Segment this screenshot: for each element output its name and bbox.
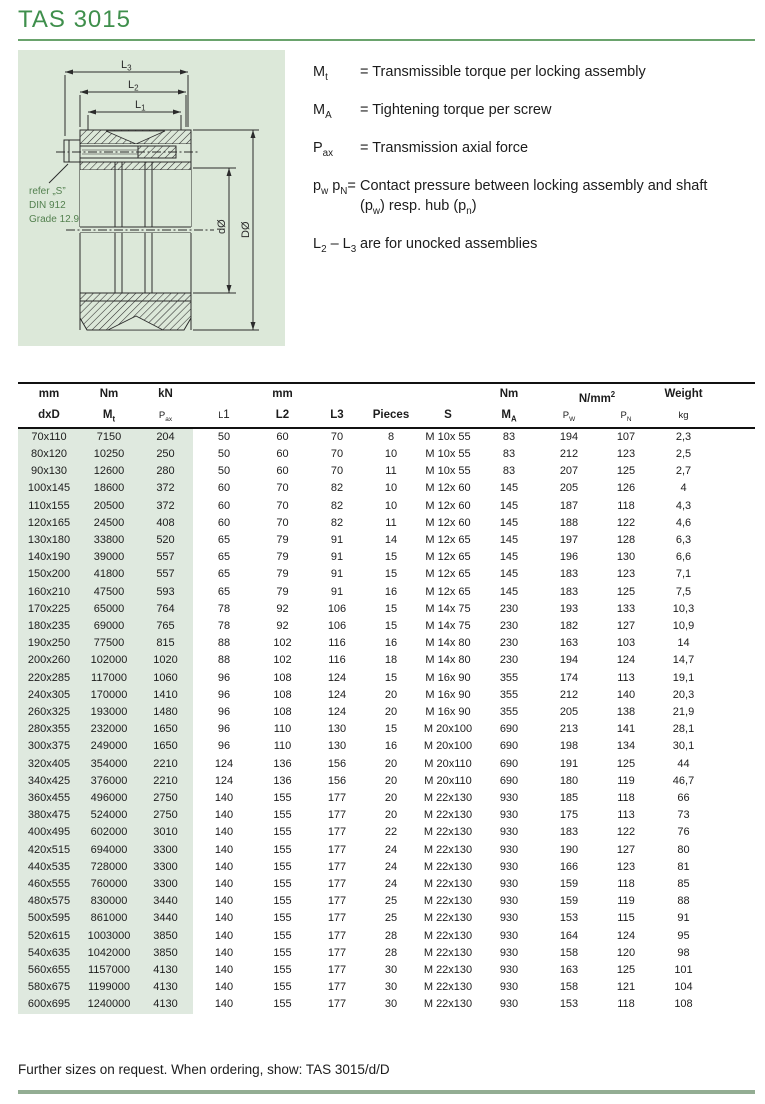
cell-l1: 96 — [193, 670, 255, 687]
cell-s: M 22x130 — [418, 996, 478, 1013]
legend-symbol: Mt — [313, 62, 360, 88]
cell-weight: 44 — [654, 756, 755, 773]
legend-symbol: Pax — [313, 138, 360, 164]
cell-pn: 123 — [598, 446, 654, 463]
cell-pn: 125 — [598, 756, 654, 773]
table-unit-row: mmNmkNmmNmN/mm2Weight — [18, 384, 755, 408]
cell-dxd: 600x695 — [18, 996, 80, 1013]
cell-pn: 141 — [598, 721, 654, 738]
cell-l3: 156 — [310, 773, 364, 790]
cell-l2: 108 — [255, 670, 310, 687]
cell-s: M 22x130 — [418, 842, 478, 859]
cell-l3: 177 — [310, 910, 364, 927]
legend-description: = Transmissible torque per locking assem… — [360, 62, 753, 88]
cell-pw: 213 — [540, 721, 598, 738]
cell-s: M 14x 80 — [418, 652, 478, 669]
cell-pieces: 25 — [364, 910, 418, 927]
cell-pn: 118 — [598, 876, 654, 893]
cell-weight: 95 — [654, 928, 755, 945]
cell-pax: 1410 — [138, 687, 193, 704]
cell-weight: 14,7 — [654, 652, 755, 669]
cell-pn: 138 — [598, 704, 654, 721]
cell-pn: 127 — [598, 618, 654, 635]
cell-l1: 50 — [193, 429, 255, 446]
cell-dxd: 160x210 — [18, 584, 80, 601]
cell-l1: 65 — [193, 584, 255, 601]
table-row: 260x32519300014809610812420M 16x 9035520… — [18, 704, 755, 721]
cell-dxd: 360x455 — [18, 790, 80, 807]
cell-pax: 520 — [138, 532, 193, 549]
cell-ma: 145 — [478, 549, 540, 566]
cell-ma: 930 — [478, 859, 540, 876]
cell-ma: 145 — [478, 515, 540, 532]
cell-pieces: 24 — [364, 842, 418, 859]
cell-ma: 230 — [478, 618, 540, 635]
cell-pw: 212 — [540, 446, 598, 463]
cell-dxd: 220x285 — [18, 670, 80, 687]
cell-mt: 24500 — [80, 515, 138, 532]
column-header-pn: PN — [598, 408, 654, 427]
cell-mt: 18600 — [80, 480, 138, 497]
cell-s: M 22x130 — [418, 807, 478, 824]
cell-pieces: 20 — [364, 807, 418, 824]
cell-l3: 70 — [310, 446, 364, 463]
cell-dxd: 170x225 — [18, 601, 80, 618]
cell-pax: 2210 — [138, 773, 193, 790]
dimension-l1-label: L1 — [135, 99, 146, 113]
cell-pieces: 20 — [364, 704, 418, 721]
cell-pw: 153 — [540, 910, 598, 927]
cell-pieces: 11 — [364, 463, 418, 480]
cell-mt: 69000 — [80, 618, 138, 635]
unit-cell — [193, 384, 255, 408]
cell-l2: 155 — [255, 979, 310, 996]
cell-pn: 125 — [598, 584, 654, 601]
cell-pax: 372 — [138, 480, 193, 497]
cell-pieces: 15 — [364, 670, 418, 687]
cell-pn: 125 — [598, 463, 654, 480]
table-header-row: dxDMtPaxL1L2L3PiecesSMAPWPNkg — [18, 408, 755, 427]
cell-weight: 46,7 — [654, 773, 755, 790]
cell-s: M 12x 60 — [418, 515, 478, 532]
cell-l1: 88 — [193, 635, 255, 652]
cell-pn: 140 — [598, 687, 654, 704]
cell-mt: 10250 — [80, 446, 138, 463]
cell-dxd: 190x250 — [18, 635, 80, 652]
cell-dxd: 110x155 — [18, 498, 80, 515]
cell-mt: 33800 — [80, 532, 138, 549]
cell-dxd: 520x615 — [18, 928, 80, 945]
column-header-pw: PW — [540, 408, 598, 427]
cell-s: M 10x 55 — [418, 463, 478, 480]
column-header-pax: Pax — [138, 408, 193, 427]
cell-ma: 930 — [478, 979, 540, 996]
cell-pax: 1650 — [138, 721, 193, 738]
cell-l2: 155 — [255, 824, 310, 841]
cell-l3: 156 — [310, 756, 364, 773]
assembly-lower-half — [80, 233, 191, 330]
cell-pax: 4130 — [138, 962, 193, 979]
cell-pax: 557 — [138, 549, 193, 566]
dimension-d-big-label: DØ — [240, 221, 252, 238]
cell-pw: 174 — [540, 670, 598, 687]
cell-s: M 10x 55 — [418, 446, 478, 463]
cell-pn: 122 — [598, 515, 654, 532]
cell-l3: 116 — [310, 652, 364, 669]
cell-pieces: 30 — [364, 996, 418, 1013]
cell-weight: 98 — [654, 945, 755, 962]
cell-weight: 21,9 — [654, 704, 755, 721]
table-row: 360x455496000275014015517720M 22x1309301… — [18, 790, 755, 807]
cell-dxd: 180x235 — [18, 618, 80, 635]
cell-l2: 110 — [255, 738, 310, 755]
legend-description: = Tightening torque per screw — [360, 100, 753, 126]
cell-l2: 110 — [255, 721, 310, 738]
cell-ma: 930 — [478, 928, 540, 945]
cell-l3: 82 — [310, 515, 364, 532]
cell-l1: 50 — [193, 463, 255, 480]
cell-pn: 115 — [598, 910, 654, 927]
cell-mt: 760000 — [80, 876, 138, 893]
cell-l2: 155 — [255, 945, 310, 962]
legend-description: are for unocked assemblies — [360, 234, 753, 260]
cell-pieces: 15 — [364, 566, 418, 583]
cell-pw: 212 — [540, 687, 598, 704]
cell-pax: 2750 — [138, 807, 193, 824]
table-row: 320x405354000221012413615620M 20x1106901… — [18, 756, 755, 773]
cell-pax: 3850 — [138, 928, 193, 945]
cell-l1: 140 — [193, 962, 255, 979]
cell-pw: 159 — [540, 893, 598, 910]
cell-pw: 198 — [540, 738, 598, 755]
cell-l2: 70 — [255, 498, 310, 515]
cell-weight: 101 — [654, 962, 755, 979]
cell-dxd: 480x575 — [18, 893, 80, 910]
cell-pw: 175 — [540, 807, 598, 824]
cell-pax: 765 — [138, 618, 193, 635]
cell-l2: 155 — [255, 996, 310, 1013]
cell-pax: 2750 — [138, 790, 193, 807]
dimension-l2-label: L2 — [128, 79, 139, 93]
cell-l3: 177 — [310, 928, 364, 945]
cell-l1: 140 — [193, 859, 255, 876]
cell-pieces: 16 — [364, 738, 418, 755]
column-header-l1: L1 — [193, 408, 255, 427]
cell-l3: 177 — [310, 824, 364, 841]
cell-pieces: 24 — [364, 876, 418, 893]
cell-l3: 106 — [310, 601, 364, 618]
cell-pn: 107 — [598, 429, 654, 446]
cell-ma: 930 — [478, 996, 540, 1013]
cell-l3: 130 — [310, 721, 364, 738]
table-row: 70x11071502045060708M 10x 55831941072,3 — [18, 429, 755, 446]
cell-dxd: 340x425 — [18, 773, 80, 790]
column-header-ma: MA — [478, 408, 540, 427]
cell-pw: 190 — [540, 842, 598, 859]
cell-pax: 280 — [138, 463, 193, 480]
cell-l3: 91 — [310, 532, 364, 549]
cell-ma: 930 — [478, 807, 540, 824]
cell-pax: 204 — [138, 429, 193, 446]
cell-l1: 140 — [193, 945, 255, 962]
cell-mt: 12600 — [80, 463, 138, 480]
cell-pw: 185 — [540, 790, 598, 807]
cell-pn: 122 — [598, 824, 654, 841]
cell-s: M 20x110 — [418, 756, 478, 773]
cell-pw: 164 — [540, 928, 598, 945]
cell-mt: 41800 — [80, 566, 138, 583]
cell-l1: 140 — [193, 910, 255, 927]
cell-weight: 10,3 — [654, 601, 755, 618]
cell-pn: 124 — [598, 928, 654, 945]
cell-pieces: 14 — [364, 532, 418, 549]
cell-weight: 85 — [654, 876, 755, 893]
svg-text:DIN 912: DIN 912 — [29, 200, 66, 211]
cell-l1: 65 — [193, 549, 255, 566]
dimension-l3: L3 — [65, 59, 188, 136]
unit-cell — [310, 384, 364, 408]
cell-l1: 60 — [193, 498, 255, 515]
cell-l3: 177 — [310, 807, 364, 824]
cell-pw: 194 — [540, 652, 598, 669]
cell-ma: 930 — [478, 824, 540, 841]
cell-dxd: 90x130 — [18, 463, 80, 480]
cell-mt: 20500 — [80, 498, 138, 515]
legend-symbol: MA — [313, 100, 360, 126]
cell-mt: 47500 — [80, 584, 138, 601]
cell-s: M 22x130 — [418, 876, 478, 893]
cell-l1: 60 — [193, 480, 255, 497]
cell-l1: 140 — [193, 876, 255, 893]
cell-mt: 193000 — [80, 704, 138, 721]
cell-mt: 1240000 — [80, 996, 138, 1013]
cell-dxd: 460x555 — [18, 876, 80, 893]
cell-l3: 177 — [310, 790, 364, 807]
table-row: 440x535728000330014015517724M 22x1309301… — [18, 859, 755, 876]
cell-l2: 79 — [255, 566, 310, 583]
table-row: 200x26010200010208810211618M 14x 8023019… — [18, 652, 755, 669]
footer-divider — [18, 1090, 755, 1094]
unit-cell — [418, 384, 478, 408]
cell-pn: 113 — [598, 670, 654, 687]
cell-pieces: 18 — [364, 652, 418, 669]
cell-dxd: 140x190 — [18, 549, 80, 566]
cell-l2: 60 — [255, 429, 310, 446]
table-row: 110x1552050037260708210M 12x 60145187118… — [18, 498, 755, 515]
cell-pieces: 20 — [364, 687, 418, 704]
cell-pax: 1480 — [138, 704, 193, 721]
cell-pax: 1650 — [138, 738, 193, 755]
cell-dxd: 280x355 — [18, 721, 80, 738]
cell-l1: 78 — [193, 618, 255, 635]
cell-dxd: 540x635 — [18, 945, 80, 962]
table-row: 340x425376000221012413615620M 20x1106901… — [18, 773, 755, 790]
cell-l2: 79 — [255, 549, 310, 566]
title-divider — [18, 39, 755, 41]
cell-l3: 177 — [310, 996, 364, 1013]
cell-l3: 177 — [310, 945, 364, 962]
cell-s: M 14x 75 — [418, 601, 478, 618]
cell-s: M 12x 65 — [418, 532, 478, 549]
cell-pn: 118 — [598, 790, 654, 807]
cell-mt: 102000 — [80, 652, 138, 669]
column-header-l2: L2 — [255, 408, 310, 427]
cell-weight: 4 — [654, 480, 755, 497]
legend-item: pw pN=Contact pressure between locking a… — [313, 176, 753, 222]
cell-s: M 22x130 — [418, 893, 478, 910]
cell-s: M 22x130 — [418, 824, 478, 841]
screw-head — [64, 140, 80, 162]
table-row: 150x2004180055765799115M 12x 65145183123… — [18, 566, 755, 583]
cell-pn: 126 — [598, 480, 654, 497]
table-row: 480x575830000344014015517725M 22x1309301… — [18, 893, 755, 910]
cell-pax: 408 — [138, 515, 193, 532]
cell-s: M 12x 60 — [418, 498, 478, 515]
cell-l1: 78 — [193, 601, 255, 618]
cell-pax: 4130 — [138, 996, 193, 1013]
cell-l1: 96 — [193, 687, 255, 704]
cell-l1: 65 — [193, 532, 255, 549]
cell-mt: 354000 — [80, 756, 138, 773]
cell-pax: 1020 — [138, 652, 193, 669]
cell-pw: 183 — [540, 824, 598, 841]
table-row: 130x1803380052065799114M 12x 65145197128… — [18, 532, 755, 549]
dimension-l3-label: L3 — [121, 59, 132, 73]
unit-cell: kN — [138, 384, 193, 408]
cell-s: M 22x130 — [418, 945, 478, 962]
cell-ma: 355 — [478, 704, 540, 721]
cell-pieces: 16 — [364, 584, 418, 601]
cell-l3: 91 — [310, 549, 364, 566]
cell-weight: 76 — [654, 824, 755, 841]
cell-pw: 193 — [540, 601, 598, 618]
cell-pieces: 15 — [364, 618, 418, 635]
cell-pw: 159 — [540, 876, 598, 893]
cell-l1: 140 — [193, 824, 255, 841]
cell-dxd: 200x260 — [18, 652, 80, 669]
column-header-mt: Mt — [80, 408, 138, 427]
cell-pieces: 20 — [364, 756, 418, 773]
legend-item: Mt= Transmissible torque per locking ass… — [313, 62, 753, 88]
cell-mt: 694000 — [80, 842, 138, 859]
cell-pn: 121 — [598, 979, 654, 996]
table-row: 580x6751199000413014015517730M 22x130930… — [18, 979, 755, 996]
cell-pn: 134 — [598, 738, 654, 755]
cell-weight: 2,7 — [654, 463, 755, 480]
cell-l2: 108 — [255, 687, 310, 704]
cell-dxd: 240x305 — [18, 687, 80, 704]
legend-description: = Transmission axial force — [360, 138, 753, 164]
cell-pn: 124 — [598, 652, 654, 669]
cell-ma: 145 — [478, 498, 540, 515]
cell-pn: 128 — [598, 532, 654, 549]
cell-weight: 66 — [654, 790, 755, 807]
cell-l2: 60 — [255, 463, 310, 480]
cell-l3: 177 — [310, 876, 364, 893]
cell-l2: 155 — [255, 928, 310, 945]
cell-pw: 197 — [540, 532, 598, 549]
table-body: 70x11071502045060708M 10x 55831941072,38… — [18, 429, 755, 1014]
cell-l1: 50 — [193, 446, 255, 463]
cell-pn: 127 — [598, 842, 654, 859]
cell-mt: 1003000 — [80, 928, 138, 945]
cell-l2: 155 — [255, 910, 310, 927]
cell-pax: 3440 — [138, 893, 193, 910]
unit-cell — [364, 384, 418, 408]
cell-l1: 140 — [193, 893, 255, 910]
cell-l1: 60 — [193, 515, 255, 532]
table-header: mmNmkNmmNmN/mm2Weight dxDMtPaxL1L2L3Piec… — [18, 384, 755, 429]
cell-weight: 7,5 — [654, 584, 755, 601]
cell-l3: 130 — [310, 738, 364, 755]
cell-dxd: 500x595 — [18, 910, 80, 927]
cell-l3: 177 — [310, 842, 364, 859]
column-header-pieces: Pieces — [364, 408, 418, 427]
cell-pieces: 8 — [364, 429, 418, 446]
cell-pieces: 15 — [364, 601, 418, 618]
page-title: TAS 3015 — [18, 6, 131, 34]
dimension-l2: L2 — [80, 79, 186, 127]
cell-s: M 20x110 — [418, 773, 478, 790]
cell-l2: 155 — [255, 807, 310, 824]
cell-ma: 230 — [478, 635, 540, 652]
cell-ma: 83 — [478, 429, 540, 446]
table-row: 460x555760000330014015517724M 22x1309301… — [18, 876, 755, 893]
cell-ma: 690 — [478, 773, 540, 790]
cell-s: M 22x130 — [418, 928, 478, 945]
cell-mt: 830000 — [80, 893, 138, 910]
cell-l1: 140 — [193, 790, 255, 807]
cell-pw: 191 — [540, 756, 598, 773]
cell-ma: 83 — [478, 446, 540, 463]
cell-l1: 124 — [193, 756, 255, 773]
cell-pieces: 10 — [364, 446, 418, 463]
svg-text:Grade 12.9: Grade 12.9 — [29, 214, 79, 225]
table-row: 380x475524000275014015517720M 22x1309301… — [18, 807, 755, 824]
table-row: 300x37524900016509611013016M 20x10069019… — [18, 738, 755, 755]
cell-l1: 140 — [193, 928, 255, 945]
cell-pn: 118 — [598, 996, 654, 1013]
cell-pieces: 30 — [364, 979, 418, 996]
cell-weight: 80 — [654, 842, 755, 859]
cell-weight: 88 — [654, 893, 755, 910]
cell-weight: 19,1 — [654, 670, 755, 687]
column-header-l3: L3 — [310, 408, 364, 427]
table-row: 80x1201025025050607010M 10x 55832121232,… — [18, 446, 755, 463]
cell-pax: 250 — [138, 446, 193, 463]
table-row: 180x23569000765789210615M 14x 7523018212… — [18, 618, 755, 635]
cell-l2: 102 — [255, 652, 310, 669]
cell-pieces: 11 — [364, 515, 418, 532]
table-row: 240x30517000014109610812420M 16x 9035521… — [18, 687, 755, 704]
cell-pn: 120 — [598, 945, 654, 962]
cell-l2: 155 — [255, 962, 310, 979]
footer-note: Further sizes on request. When ordering,… — [18, 1062, 390, 1077]
cell-s: M 14x 75 — [418, 618, 478, 635]
assembly-upper-half — [64, 130, 191, 227]
cell-weight: 14 — [654, 635, 755, 652]
cell-l3: 177 — [310, 962, 364, 979]
assembly-cross-section-drawing: L3 L2 L1 — [18, 50, 285, 346]
cell-pieces: 28 — [364, 945, 418, 962]
table-row: 90x1301260028050607011M 10x 55832071252,… — [18, 463, 755, 480]
cell-dxd: 100x145 — [18, 480, 80, 497]
cell-s: M 12x 65 — [418, 549, 478, 566]
cell-ma: 690 — [478, 738, 540, 755]
cell-ma: 930 — [478, 842, 540, 859]
cell-l3: 124 — [310, 687, 364, 704]
cell-pw: 180 — [540, 773, 598, 790]
